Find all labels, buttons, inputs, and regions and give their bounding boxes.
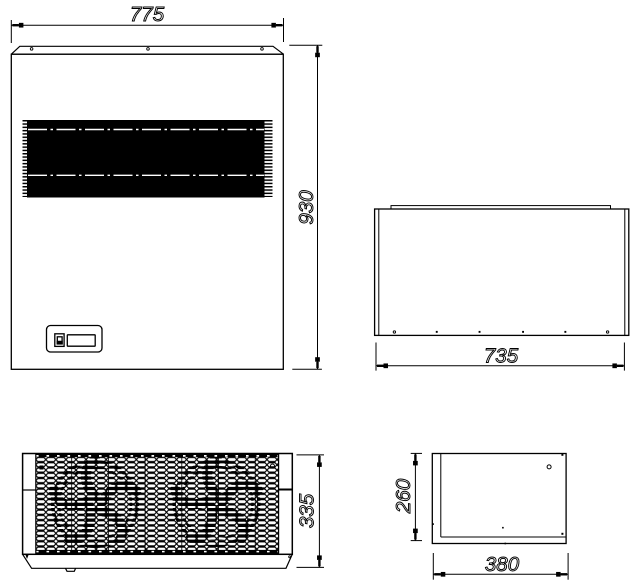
svg-text:775: 775	[130, 3, 165, 26]
svg-text:930: 930	[295, 190, 318, 225]
svg-text:260: 260	[392, 478, 415, 514]
svg-text:380: 380	[485, 553, 520, 576]
svg-text:735: 735	[484, 344, 519, 367]
svg-text:335: 335	[296, 493, 319, 528]
